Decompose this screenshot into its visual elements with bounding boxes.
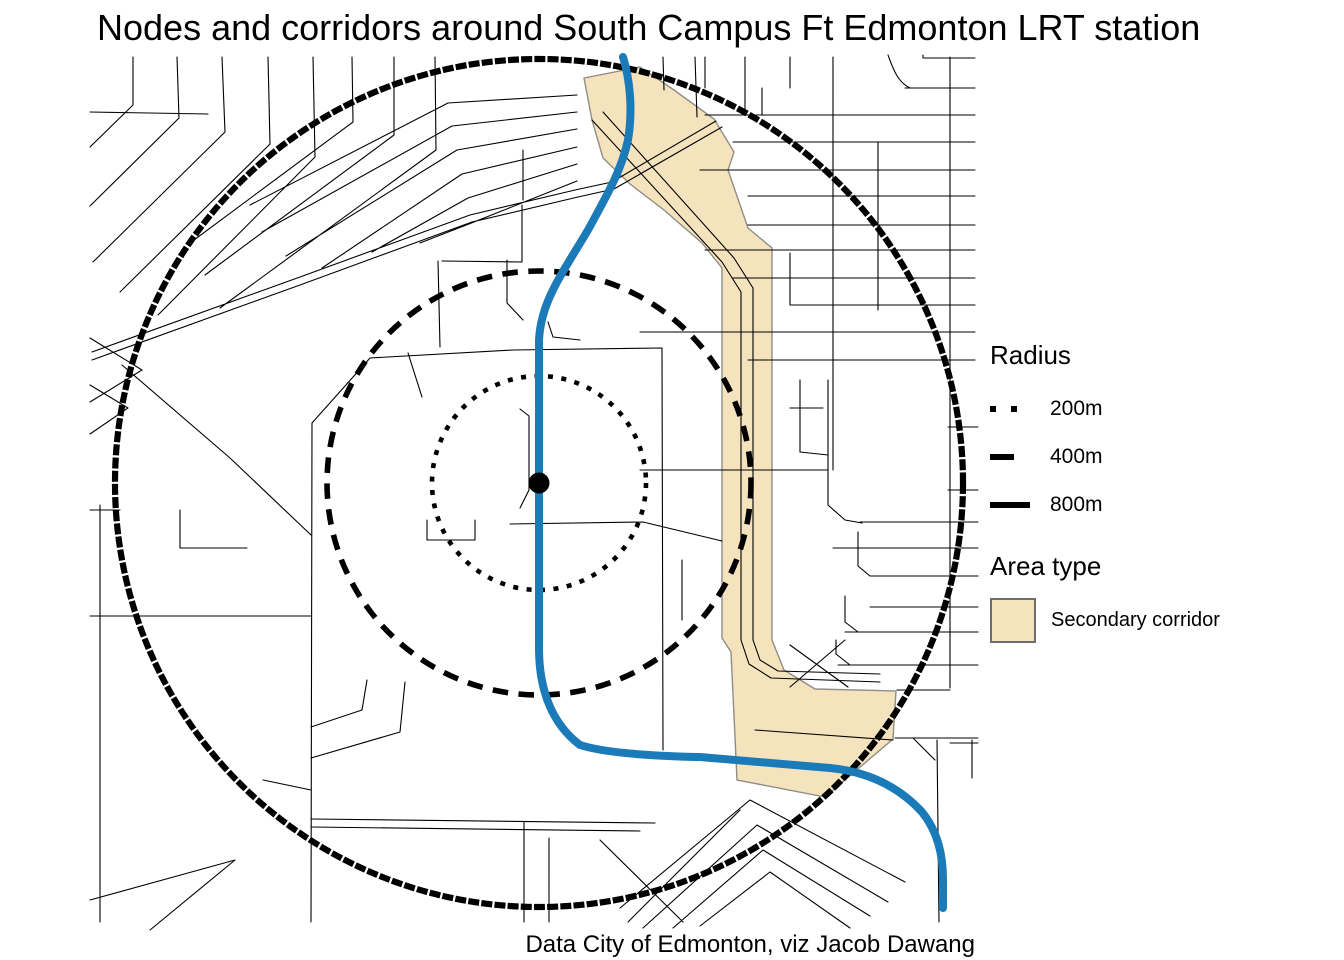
dashed-line-sample [990, 454, 1036, 460]
station-dot [529, 473, 550, 494]
legend-item-label: 800m [1050, 493, 1103, 517]
legend-item-label: Secondary corridor [1051, 609, 1220, 632]
legend-area-type: Area type Secondary corridor [990, 551, 1320, 643]
legend-item-800m: 800m [990, 493, 1320, 517]
legend-item-label: 200m [1050, 397, 1103, 421]
legend-item-label: 400m [1050, 445, 1103, 469]
corridor-swatch [990, 598, 1036, 643]
caption: Data City of Edmonton, viz Jacob Dawang [375, 931, 975, 959]
dotted-line-sample [990, 406, 1036, 412]
legend-item-400m: 400m [990, 445, 1320, 469]
legend-item-200m: 200m [990, 397, 1320, 421]
legend-item-secondary-corridor: Secondary corridor [990, 598, 1320, 643]
secondary-corridor-area [584, 67, 896, 797]
solid-line-sample [990, 502, 1036, 508]
figure: Nodes and corridors around South Campus … [0, 0, 1344, 960]
legend-radius-header: Radius [990, 340, 1320, 371]
legend: Radius 200m 400m 800m Area type Secondar… [990, 340, 1320, 643]
legend-area-header: Area type [990, 551, 1320, 582]
